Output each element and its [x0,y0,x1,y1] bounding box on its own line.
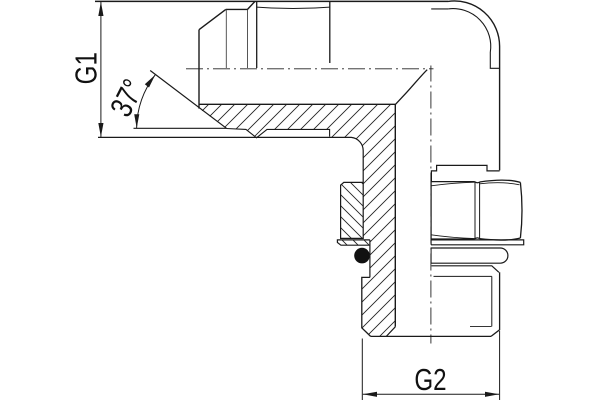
svg-text:G1: G1 [69,52,104,84]
svg-text:G2: G2 [414,362,446,397]
